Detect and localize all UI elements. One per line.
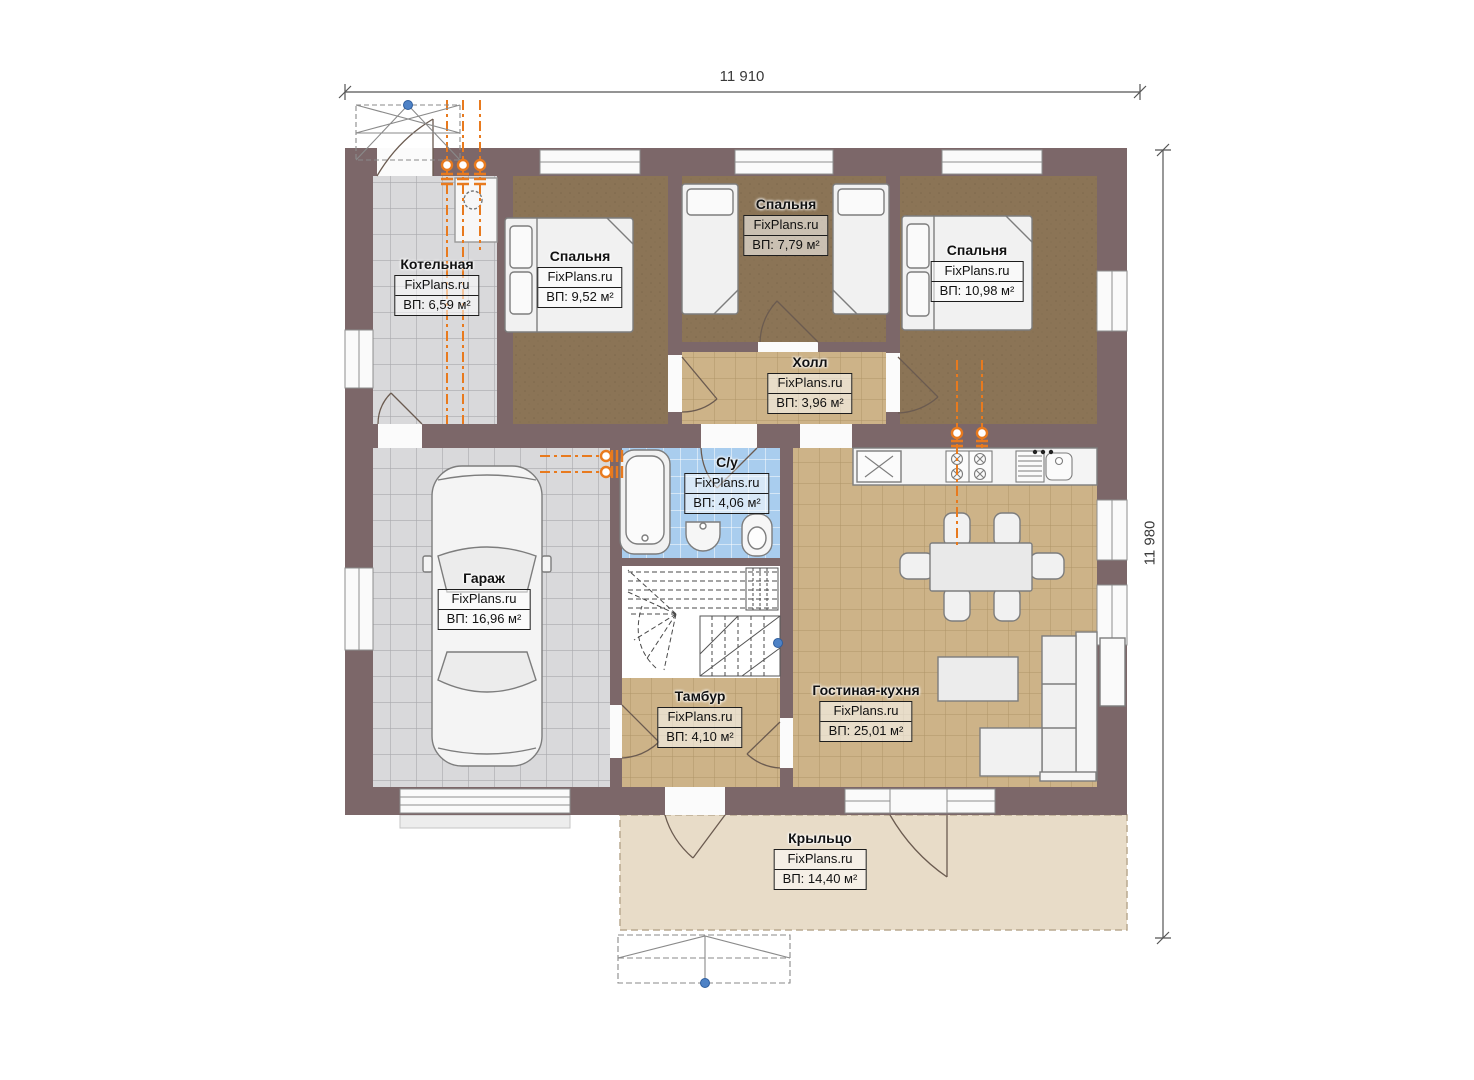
- garage-gate: [400, 789, 570, 813]
- window: [1097, 500, 1127, 560]
- room-name: Котельная: [394, 256, 479, 272]
- room-name: С/у: [684, 454, 769, 470]
- chair: [944, 587, 970, 621]
- room-label-bedroom2: Спальня FixPlans.ru ВП: 7,79 м²: [743, 196, 828, 256]
- garage-apron: [400, 815, 570, 828]
- window: [1097, 271, 1127, 331]
- room-info-box: FixPlans.ru ВП: 10,98 м²: [931, 261, 1024, 302]
- room-name: Спальня: [537, 248, 622, 264]
- chair: [900, 553, 934, 579]
- floor-plan-drawing: [0, 0, 1474, 1080]
- window-sill: [1100, 638, 1125, 706]
- gable-symbol-bottom: [618, 935, 790, 983]
- room-label-bedroom3: Спальня FixPlans.ru ВП: 10,98 м²: [931, 242, 1024, 302]
- room-area: ВП: 7,79 м²: [744, 236, 827, 255]
- room-info-box: FixPlans.ru ВП: 16,96 м²: [438, 589, 531, 630]
- room-info-box: FixPlans.ru ВП: 4,10 м²: [657, 707, 742, 748]
- room-label-bedroom1: Спальня FixPlans.ru ВП: 9,52 м²: [537, 248, 622, 308]
- toilet: [742, 514, 772, 556]
- room-label-garage: Гараж FixPlans.ru ВП: 16,96 м²: [438, 570, 531, 630]
- wall-inner: [610, 558, 793, 566]
- room-name: Крыльцо: [774, 830, 867, 846]
- bathroom-sink: [686, 522, 720, 551]
- room-area: ВП: 9,52 м²: [538, 288, 621, 307]
- kitchen-counter: [853, 448, 1097, 485]
- window: [1097, 585, 1127, 645]
- level-marker: [774, 639, 783, 648]
- room-brand: FixPlans.ru: [744, 216, 827, 236]
- room-name: Холл: [767, 354, 852, 370]
- room-label-su: С/у FixPlans.ru ВП: 4,06 м²: [684, 454, 769, 514]
- room-info-box: FixPlans.ru ВП: 7,79 м²: [743, 215, 828, 256]
- room-info-box: FixPlans.ru ВП: 9,52 м²: [537, 267, 622, 308]
- room-name: Гараж: [438, 570, 531, 586]
- dimension-line-top: [339, 84, 1146, 100]
- wall-outer-left: [345, 148, 373, 815]
- room-info-box: FixPlans.ru ВП: 25,01 м²: [820, 701, 913, 742]
- window: [345, 330, 373, 388]
- room-label-tambur: Тамбур FixPlans.ru ВП: 4,10 м²: [657, 688, 742, 748]
- room-name: Спальня: [743, 196, 828, 212]
- room-area: ВП: 4,10 м²: [658, 728, 741, 747]
- room-brand: FixPlans.ru: [768, 374, 851, 394]
- dimension-label-height: 11 980: [1142, 521, 1159, 566]
- room-label-hall: Холл FixPlans.ru ВП: 3,96 м²: [767, 354, 852, 414]
- fridge: [857, 451, 901, 482]
- room-area: ВП: 14,40 м²: [775, 870, 866, 889]
- level-marker: [404, 101, 413, 110]
- room-label-living: Гостиная-кухня FixPlans.ru ВП: 25,01 м²: [812, 682, 919, 742]
- window: [345, 568, 373, 650]
- boiler-unit: [455, 178, 497, 242]
- room-brand: FixPlans.ru: [439, 590, 530, 610]
- floor-plan-sheet: Котельная FixPlans.ru ВП: 6,59 м² Спальн…: [0, 0, 1474, 1080]
- chair: [994, 587, 1020, 621]
- window: [942, 150, 1042, 174]
- room-info-box: FixPlans.ru ВП: 3,96 м²: [767, 373, 852, 414]
- floor-porch: [620, 815, 1127, 930]
- room-brand: FixPlans.ru: [538, 268, 621, 288]
- single-bed: [833, 184, 889, 314]
- wall-inner: [780, 558, 793, 678]
- room-brand: FixPlans.ru: [395, 276, 478, 296]
- level-marker: [701, 979, 710, 988]
- room-name: Тамбур: [657, 688, 742, 704]
- stove: [946, 451, 992, 482]
- room-brand: FixPlans.ru: [775, 850, 866, 870]
- wall-outer-right: [1097, 148, 1127, 815]
- coffee-table: [938, 657, 1018, 701]
- room-area: ВП: 3,96 м²: [768, 394, 851, 413]
- window: [735, 150, 833, 174]
- room-brand: FixPlans.ru: [932, 262, 1023, 282]
- dimension-label-width: 11 910: [720, 68, 765, 85]
- room-info-box: FixPlans.ru ВП: 4,06 м²: [684, 473, 769, 514]
- room-area: ВП: 6,59 м²: [395, 296, 478, 315]
- room-brand: FixPlans.ru: [685, 474, 768, 494]
- chair: [1030, 553, 1064, 579]
- room-label-kotelnaya: Котельная FixPlans.ru ВП: 6,59 м²: [394, 256, 479, 316]
- porch-door-unit: [845, 789, 995, 813]
- room-brand: FixPlans.ru: [658, 708, 741, 728]
- bathtub: [620, 450, 670, 554]
- window: [540, 150, 640, 174]
- room-label-porch: Крыльцо FixPlans.ru ВП: 14,40 м²: [774, 830, 867, 890]
- chair: [994, 513, 1020, 547]
- room-area: ВП: 10,98 м²: [932, 282, 1023, 301]
- room-area: ВП: 16,96 м²: [439, 610, 530, 629]
- room-area: ВП: 25,01 м²: [821, 722, 912, 741]
- room-info-box: FixPlans.ru ВП: 14,40 м²: [774, 849, 867, 890]
- room-area: ВП: 4,06 м²: [685, 494, 768, 513]
- room-brand: FixPlans.ru: [821, 702, 912, 722]
- kitchen-sink: [1016, 450, 1072, 482]
- room-name: Спальня: [931, 242, 1024, 258]
- room-info-box: FixPlans.ru ВП: 6,59 м²: [394, 275, 479, 316]
- wall-inner: [780, 448, 793, 558]
- single-bed: [682, 184, 738, 314]
- room-name: Гостиная-кухня: [812, 682, 919, 698]
